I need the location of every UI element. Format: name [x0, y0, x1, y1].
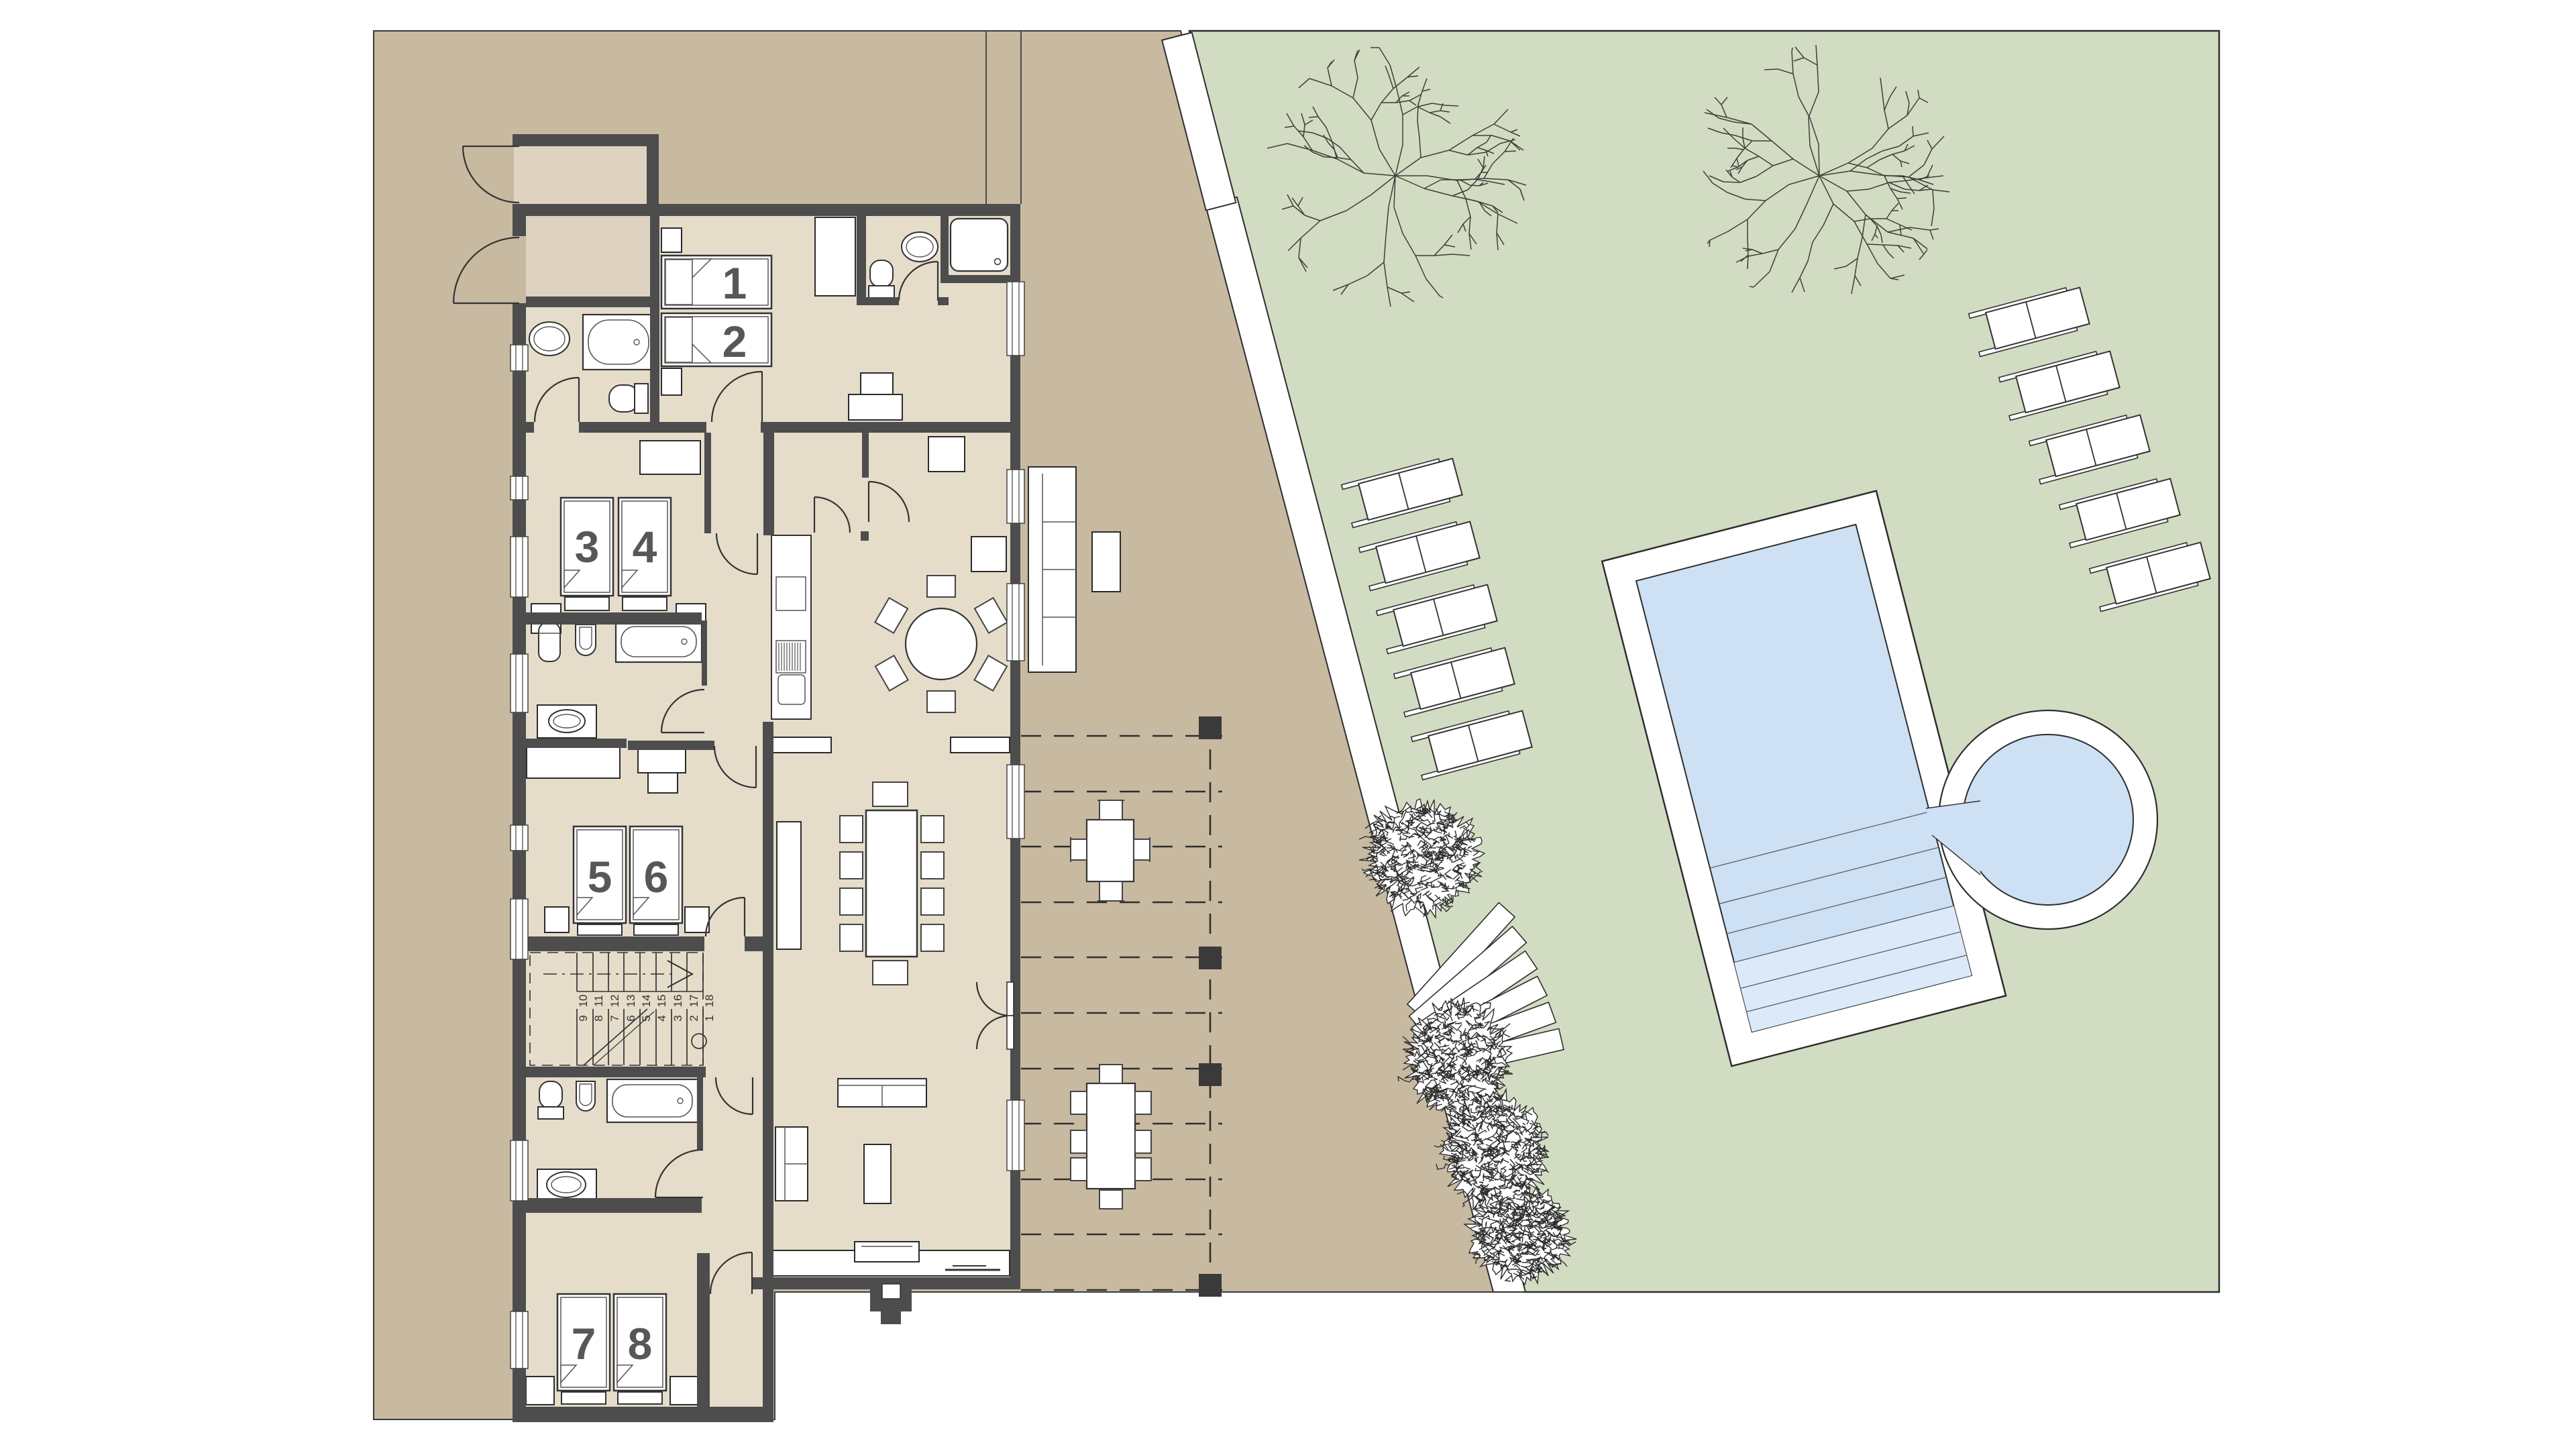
svg-text:1: 1	[722, 258, 747, 308]
svg-text:5: 5	[640, 1015, 653, 1021]
svg-text:2: 2	[722, 317, 747, 366]
svg-text:14: 14	[640, 995, 653, 1008]
svg-text:15: 15	[655, 995, 668, 1008]
svg-text:1: 1	[703, 1015, 716, 1021]
svg-text:4: 4	[655, 1015, 668, 1021]
svg-text:7: 7	[608, 1015, 621, 1021]
svg-text:17: 17	[688, 995, 700, 1008]
svg-text:4: 4	[633, 522, 657, 572]
svg-text:6: 6	[644, 852, 669, 902]
svg-text:2: 2	[688, 1015, 700, 1021]
svg-text:9: 9	[577, 1015, 590, 1021]
svg-text:18: 18	[703, 995, 716, 1008]
svg-text:16: 16	[672, 995, 684, 1008]
svg-text:7: 7	[572, 1319, 596, 1368]
svg-text:5: 5	[588, 852, 612, 902]
svg-text:11: 11	[592, 995, 605, 1007]
svg-text:3: 3	[672, 1015, 684, 1021]
svg-text:12: 12	[608, 995, 621, 1008]
svg-text:3: 3	[575, 522, 600, 572]
svg-text:10: 10	[577, 995, 590, 1008]
svg-text:13: 13	[625, 995, 637, 1008]
svg-text:8: 8	[628, 1319, 653, 1368]
svg-text:6: 6	[625, 1015, 637, 1021]
svg-text:8: 8	[592, 1015, 605, 1021]
